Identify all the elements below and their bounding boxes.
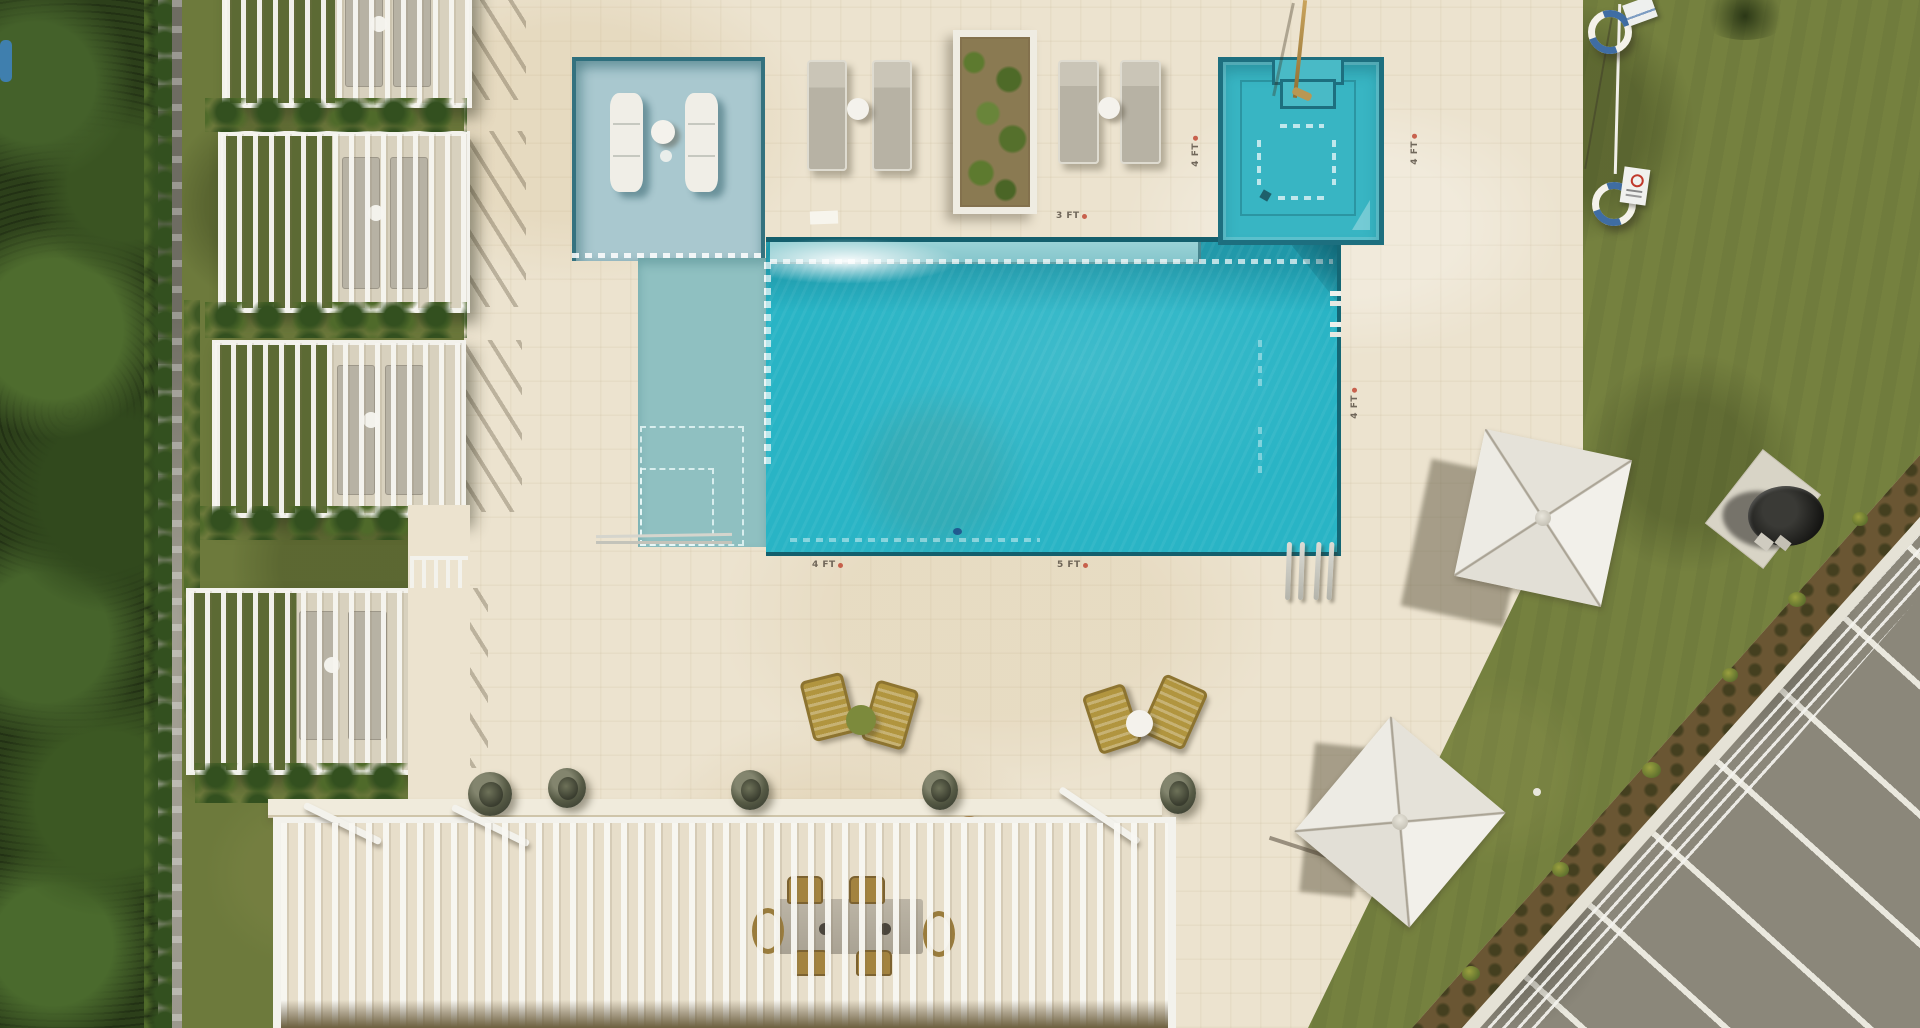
dining-chair <box>787 876 823 904</box>
table-knob <box>819 923 831 935</box>
pool-ladder-rung <box>1330 291 1341 296</box>
deck-paint-patch <box>810 211 838 225</box>
no-diving-sign <box>1620 166 1651 205</box>
depth-marker: 3 FT <box>1056 211 1087 221</box>
planter-box <box>953 30 1037 214</box>
no-diving-glyph <box>838 563 843 568</box>
planter-pot <box>1160 772 1196 814</box>
deck-walkway <box>408 505 470 817</box>
planter-pot <box>548 768 586 808</box>
cabana-3 <box>212 340 466 518</box>
lap-marker <box>1258 427 1262 477</box>
sign-text-line <box>1626 189 1642 193</box>
no-diving-glyph <box>1083 563 1088 568</box>
spa-bench-tiles <box>1332 140 1336 185</box>
dining-chair <box>849 876 885 904</box>
shrub <box>1722 668 1738 682</box>
planter-pot <box>922 770 958 810</box>
spa-bench-tiles <box>1257 140 1261 185</box>
ledge-side-table <box>651 120 675 144</box>
dining-table <box>776 899 923 954</box>
deck-step-edge <box>268 799 1162 818</box>
depth-marker: 5 FT <box>1057 560 1088 570</box>
cabana-roof-slats <box>215 343 463 515</box>
dining-chair-end <box>923 911 955 957</box>
cabana-4 <box>186 588 430 775</box>
pool-bottom-tiles <box>790 538 1040 542</box>
lounge-chair <box>1058 60 1099 164</box>
no-diving-glyph <box>1353 388 1358 393</box>
side-table <box>1098 97 1120 119</box>
in-water-lounger <box>685 93 718 192</box>
dining-pergola <box>273 817 1176 1028</box>
in-water-lounger <box>610 93 643 192</box>
lounge-chair <box>872 60 912 171</box>
cabana-post-shadows <box>462 131 526 307</box>
depth-label: 4 FT <box>812 560 836 570</box>
depth-label: 4 FT <box>1410 141 1420 165</box>
depth-label: 4 FT <box>1191 143 1201 167</box>
shrub <box>1552 862 1569 877</box>
shrub <box>1642 762 1661 778</box>
sign-text-line <box>1626 194 1642 198</box>
dining-chair-end <box>752 908 784 954</box>
no-symbol-icon <box>1630 173 1645 188</box>
no-diving-glyph <box>1194 136 1199 141</box>
lounge-chair <box>807 60 847 171</box>
pool-ladder-rung <box>1330 322 1341 327</box>
depth-label: 5 FT <box>1057 560 1081 570</box>
cabana-roof-slats <box>189 591 427 772</box>
pool-gate <box>410 556 468 588</box>
depth-marker: 4 FT <box>1350 388 1360 419</box>
side-table <box>847 98 869 120</box>
shrub <box>1462 966 1480 981</box>
bistro-table <box>1126 710 1153 737</box>
pool-ladder-rung <box>1330 332 1341 337</box>
table-knob <box>879 923 891 935</box>
ledge-drain-cap <box>660 150 672 162</box>
cabana-roof-slats <box>225 0 469 105</box>
dining-set <box>281 823 1168 1028</box>
step-handrail <box>596 541 732 544</box>
planter-pot <box>731 770 769 810</box>
patio-umbrella <box>1454 429 1632 607</box>
shrub <box>1788 592 1806 607</box>
no-diving-glyph <box>1413 134 1418 139</box>
lounge-chair <box>1120 60 1161 164</box>
sprinkler-head <box>1533 788 1541 796</box>
hedge-row <box>205 302 467 338</box>
depth-marker: 4 FT <box>812 560 843 570</box>
bistro-table-green <box>846 705 876 735</box>
pool-drain <box>953 528 962 535</box>
dining-chair <box>793 950 829 976</box>
main-pool <box>766 237 1341 556</box>
hedge-row <box>195 763 435 803</box>
cabana-roof-slats <box>221 134 467 310</box>
spa-bench-tiles <box>1278 196 1324 200</box>
cabana-post-shadows <box>458 340 522 512</box>
shrub <box>1852 512 1868 526</box>
blue-object-in-trees <box>0 40 12 82</box>
cabana-2 <box>218 131 470 313</box>
depth-label: 4 FT <box>1350 395 1360 419</box>
pool-left-tiles <box>766 262 771 467</box>
lap-marker <box>1258 340 1262 390</box>
no-diving-glyph <box>1082 214 1087 219</box>
planter-pot <box>468 772 512 816</box>
hedge-row <box>205 98 467 132</box>
depth-label: 3 FT <box>1056 211 1080 221</box>
dining-chair <box>856 950 892 976</box>
cabana-1 <box>222 0 472 108</box>
pool-waterline-tiles <box>770 259 1333 264</box>
aerial-pool-scene: 3 FT 4 FT 4 FT 4 FT 4 FT 5 FT <box>0 0 1920 1028</box>
hedge-column <box>144 0 172 1028</box>
depth-marker: 4 FT <box>1410 134 1420 165</box>
pool-ladder-rung <box>1330 301 1341 306</box>
depth-marker: 4 FT <box>1191 136 1201 167</box>
spa-bench-tiles <box>1280 124 1324 128</box>
